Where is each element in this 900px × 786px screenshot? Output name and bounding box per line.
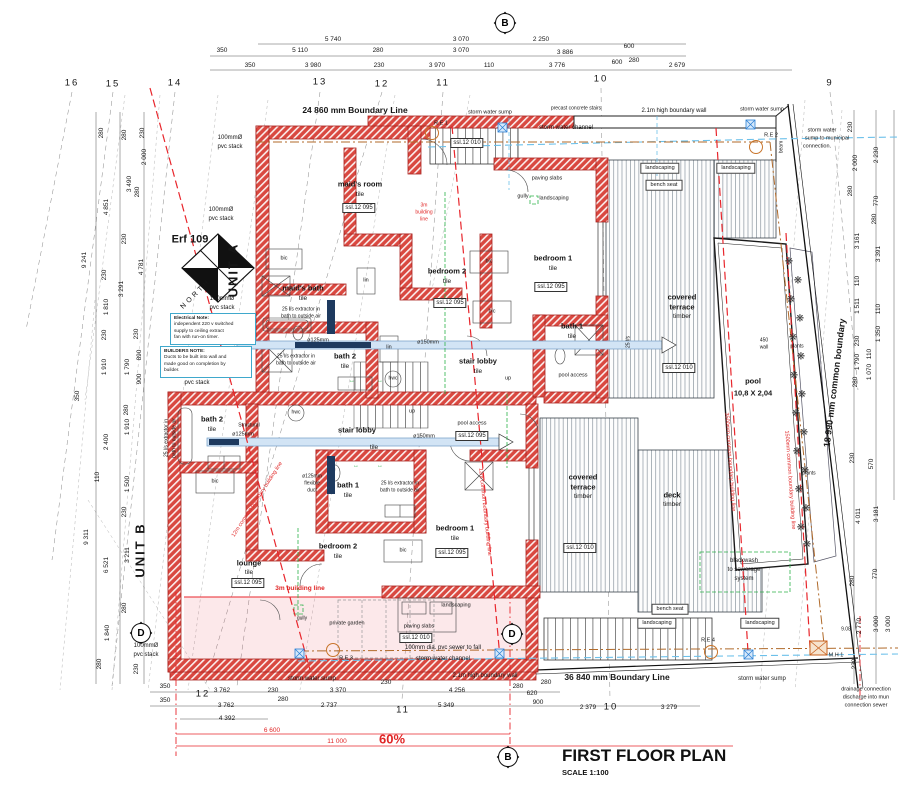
label-5-349: 5 349: [438, 703, 454, 710]
label-2-250: 2 250: [533, 37, 549, 44]
annotation-layer: 5 7403 0702 2503505 1102803 0703 8866003…: [0, 0, 900, 786]
label-25-l-s-extractor-in: 25 l/s extractor in: [277, 355, 315, 360]
label-stair-lobby: stair lobby: [459, 357, 497, 365]
label-gully: gully: [297, 617, 307, 622]
label-25-l-s-extractor-in: 25 l/s extractor in: [165, 419, 170, 457]
label-maid-s-room: maid's room: [338, 180, 382, 188]
label-beam: beam: [780, 141, 785, 154]
label-duct: duct: [307, 489, 316, 494]
label-pool-access: pool access: [457, 421, 486, 427]
label-tile: tile: [443, 279, 451, 286]
label-1-790: 1 790: [855, 354, 862, 370]
note-box-electrical-note: Electrical Note:independent 220 v switch…: [170, 313, 256, 345]
label-up: up: [409, 409, 415, 415]
label-350: 350: [160, 698, 171, 705]
label-tile: tile: [344, 493, 352, 500]
label-2-770: 2 770: [857, 618, 864, 634]
label-timber: timber: [663, 502, 681, 509]
label-18-990-mm-common-boundary: 18 990 mm common boundary: [823, 318, 848, 448]
label-3-762: 3 762: [218, 703, 234, 710]
label-25-l-s-extractor-in: 25 l/s extractor in: [282, 308, 320, 313]
marker-letter: B: [495, 13, 515, 33]
marker-letter: D: [502, 624, 522, 644]
label-3-970: 3 970: [429, 63, 445, 70]
label-pvc-stack: pvc stack: [184, 380, 209, 386]
page-title: FIRST FLOOR PLAN: [562, 746, 726, 766]
label-230: 230: [102, 270, 109, 281]
label-1-910: 1 910: [102, 359, 109, 375]
label-620: 620: [527, 691, 538, 698]
label-lin: lin: [386, 345, 392, 351]
section-marker-b: B: [497, 746, 519, 768]
label-1-790: 1 790: [125, 359, 132, 375]
label-150mm: ø150mm: [413, 434, 435, 440]
label-230: 230: [134, 329, 141, 340]
label-10: 10: [594, 74, 609, 84]
plant-icon: ❋: [798, 390, 806, 401]
label-570: 570: [869, 459, 876, 470]
label-2-000: 2 000: [142, 149, 149, 165]
label-110: 110: [867, 349, 874, 359]
label-bench-seat: bench seat: [646, 180, 683, 191]
label-ssl-12-095: ssl.12 095: [433, 298, 466, 308]
label-125mm: ø125mm: [302, 475, 322, 480]
label-m-h-1: M.H 1: [829, 653, 844, 659]
plant-icon: ❋: [793, 447, 801, 458]
label-24-860-mm-boundary-line: 24 860 mm Boundary Line: [302, 106, 407, 115]
label-4-392: 4 392: [219, 716, 235, 723]
label-bedroom-1: bedroom 1: [436, 524, 474, 532]
label-230: 230: [374, 63, 385, 70]
label-landscaping: landscaping: [740, 618, 779, 629]
label-ssl-12-095: ssl.12 095: [342, 203, 375, 213]
label-lounge: lounge: [237, 559, 262, 567]
label-6-600: 6 600: [264, 728, 280, 735]
section-marker-d: D: [501, 623, 523, 645]
label-landscaping: landscaping: [640, 163, 679, 174]
label-280: 280: [122, 130, 129, 141]
label-bath-to-outside-air: bath to outside air: [380, 489, 420, 494]
label-flexible: flexible: [304, 482, 320, 487]
label-connection-sewer: connection sewer: [845, 703, 888, 709]
label-2-737: 2 737: [321, 703, 337, 710]
label-100mm-dia-pvc-sewer-to-fall: 100mm dia. pvc sewer to fall: [405, 645, 481, 651]
label-1-070: 1 070: [867, 364, 874, 380]
label-280: 280: [99, 128, 106, 139]
label-bath-to-outside-air: bath to outside air: [173, 418, 178, 458]
label-plants: plants: [790, 345, 803, 350]
label-230: 230: [102, 330, 109, 341]
marker-letter: D: [131, 623, 151, 643]
label-r-e-1: R.E 1: [434, 121, 448, 127]
label-north: NORTH: [179, 277, 212, 310]
label-1-350: 1 350: [876, 326, 883, 342]
label-bath-1: bath 1: [337, 481, 359, 489]
label-storm-water-sump: storm water sump: [468, 110, 512, 116]
label-drainage-connection: drainage connection: [841, 687, 891, 693]
label-110: 110: [484, 63, 494, 70]
label-60: 60%: [379, 733, 405, 746]
drawing-title-block: FIRST FLOOR PLAN SCALE 1:100: [562, 746, 726, 777]
label-230: 230: [855, 336, 862, 347]
plant-icon: ❋: [794, 276, 802, 287]
label-bath-1: bath 1: [561, 322, 583, 330]
plant-icon: ❋: [790, 371, 798, 382]
label-3-070: 3 070: [453, 48, 469, 55]
label-11: 11: [436, 78, 450, 88]
plant-icon: ❋: [787, 295, 795, 306]
label-system: system: [734, 576, 753, 582]
label-ssl-12-010: ssl.12 010: [563, 543, 596, 553]
label-280: 280: [853, 377, 860, 388]
label-1-500: 1 500: [125, 476, 132, 492]
plant-icon: ❋: [795, 485, 803, 496]
label-pvc-stack: pvc stack: [208, 216, 233, 222]
plant-icon: ❋: [796, 314, 804, 325]
label-280: 280: [513, 684, 524, 691]
label-600: 600: [612, 60, 623, 67]
label-110: 110: [855, 276, 862, 286]
label-bath-2: bath 2: [334, 352, 356, 360]
label-label: ↔: [377, 378, 383, 384]
label-12: 12: [196, 689, 211, 699]
plant-icon: ❋: [797, 523, 805, 534]
label-25-l-s-extractor-in: 25 l/s extractor in: [381, 482, 419, 487]
label-16: 16: [65, 78, 80, 88]
label-landscaping: landscaping: [441, 603, 470, 609]
label-350: 350: [75, 391, 82, 402]
label-230: 230: [122, 507, 129, 518]
label-ssl-12-095: ssl.12 095: [435, 548, 468, 558]
label-label: ↔: [349, 378, 355, 384]
label-2-400: 2 400: [104, 434, 111, 450]
label-3m: 3m: [421, 204, 428, 209]
plant-icon: ❋: [803, 540, 811, 551]
label-paving-slabs: paving slabs: [532, 176, 563, 182]
label-connection: connection.: [803, 144, 831, 150]
label-280: 280: [97, 659, 104, 670]
label-4-256: 4 256: [449, 688, 465, 695]
label-gully: gully: [517, 194, 528, 200]
label-770: 770: [874, 196, 881, 207]
label-timber: timber: [673, 314, 691, 321]
label-25-l-s: 25 l/s: [627, 336, 632, 348]
label-280: 280: [629, 58, 640, 65]
plant-icon: ❋: [792, 409, 800, 420]
label-landscaping: landscaping: [637, 618, 676, 629]
label-2-230: 2 230: [874, 147, 881, 163]
label-precast-concrete-stairs: precast concrete stairs: [551, 107, 601, 112]
label-bedroom-2: bedroom 2: [428, 267, 466, 275]
label-770: 770: [873, 569, 880, 580]
label-900: 900: [533, 700, 544, 707]
label-pool-access: pool access: [558, 373, 587, 379]
label-3m-building-line: 3m building line: [275, 586, 324, 593]
label-125mm: ø125mm: [232, 432, 254, 438]
label-3-291: 3 291: [119, 281, 126, 297]
label-9-311: 9 311: [84, 529, 91, 545]
label-lin: lin: [363, 278, 369, 284]
label-bench-seat: bench seat: [652, 604, 689, 615]
label-wall: wall: [760, 346, 769, 351]
label-13: 13: [313, 77, 328, 87]
label-9: 9: [826, 78, 833, 88]
label-1-810: 1 810: [104, 299, 111, 315]
plant-icon: ❋: [800, 428, 808, 439]
note-line: fan with run-on timer.: [174, 335, 252, 341]
label-3-886: 3 886: [557, 50, 573, 57]
label-280: 280: [373, 48, 384, 55]
label-9-08: 9.08: [841, 628, 851, 633]
label-private-garden: private garden: [329, 621, 364, 627]
label-tile: tile: [356, 192, 364, 199]
drawing-scale: SCALE 1:100: [562, 768, 726, 777]
label-1500mm-common-boundary-build: 1500mm common boundary building line: [783, 430, 795, 529]
label-36-840-mm-boundary-line: 36 840 mm Boundary Line: [564, 673, 669, 682]
plant-icon: ❋: [797, 352, 805, 363]
label-280: 280: [541, 680, 552, 687]
label-11-000: 11 000: [327, 739, 346, 746]
section-marker-d: D: [130, 622, 152, 644]
label-blackwash: blackwash: [730, 558, 758, 564]
label-r-e-3: R.E 3: [339, 656, 353, 662]
label-3-181: 3 181: [874, 506, 881, 522]
label-up: up: [505, 376, 511, 382]
label-280: 280: [135, 187, 142, 198]
label-storm-water-sump: storm water sump: [738, 676, 786, 682]
label-15: 15: [106, 79, 121, 89]
label-tile: tile: [334, 554, 342, 561]
label-ssl-12-010: ssl.12 010: [662, 363, 695, 373]
label-hwc: hwc: [389, 377, 398, 382]
label-230: 230: [122, 234, 129, 245]
plant-icon: ❋: [801, 466, 809, 477]
label-bath-to-outside-air: bath to outside air: [281, 315, 321, 320]
label-280: 280: [848, 186, 855, 197]
label-280: 280: [124, 405, 131, 416]
label-280: 280: [122, 603, 129, 614]
label-landscaping: landscaping: [539, 196, 568, 202]
label-12m-common-boundary-building: 12m common boundary building line: [232, 461, 285, 538]
label-unit-b: UNIT B: [134, 522, 147, 577]
label-tile: tile: [370, 445, 378, 452]
note-line: builder.: [164, 368, 248, 374]
label-ssl-12-095: ssl.12 095: [231, 578, 264, 588]
label-tile: tile: [245, 570, 253, 577]
label-2-1m-high-boundary-wall: 2.1m high boundary wall: [641, 108, 706, 114]
label-230: 230: [852, 659, 859, 670]
label-4-851: 4 851: [104, 199, 111, 215]
label-4-011: 4 011: [856, 508, 863, 524]
label-bath-2: bath 2: [201, 415, 223, 423]
label-bic: bic: [211, 479, 218, 485]
label-ssl-12-095: ssl.12 095: [455, 431, 488, 441]
label-tile: tile: [299, 296, 307, 303]
label-230: 230: [268, 688, 279, 695]
label-label: ↔: [377, 463, 383, 469]
label-3-000: 3 000: [886, 616, 893, 632]
label-tile: tile: [451, 536, 459, 543]
label-bic: bic: [485, 259, 492, 265]
label-unit-a: UNIT A: [227, 243, 240, 298]
label-2-379: 2 379: [580, 705, 596, 712]
label-900: 900: [137, 374, 144, 385]
label-structural: Structural: [238, 424, 259, 429]
label-erf-109: Erf 109: [172, 235, 209, 246]
label-terrace: terrace: [570, 483, 595, 491]
label-10: 10: [604, 702, 619, 712]
label-r-e-4: R.E 4: [701, 638, 715, 644]
label-ssl-12-010: ssl.12 010: [450, 138, 483, 148]
label-bic: bic: [399, 548, 406, 554]
label-125mm: ø125mm: [307, 338, 329, 344]
label-discharge-into-mun: discharge into mun: [843, 695, 889, 701]
label-terrace: terrace: [669, 303, 694, 311]
label-11: 11: [396, 705, 410, 715]
label-3-000: 3 000: [874, 616, 881, 632]
label-tile: tile: [474, 369, 482, 376]
label-bic: bic: [280, 256, 287, 262]
label-1-910: 1 910: [125, 419, 132, 435]
label-2-1m-high-boundary-wall: 2.1m high boundary wall: [452, 673, 517, 679]
label-r-e-2: R.E 2: [764, 133, 778, 139]
label-deck: deck: [663, 491, 680, 499]
label-3-070: 3 070: [453, 37, 469, 44]
label-150mm: ø150mm: [417, 340, 439, 346]
label-building: building: [415, 211, 432, 216]
label-230: 230: [381, 680, 392, 687]
label-sump-to-municipal: sump to municipal: [805, 136, 849, 142]
label-ssl-12-095: ssl.12 095: [534, 282, 567, 292]
label-110: 110: [95, 472, 102, 482]
label-280: 280: [872, 214, 879, 225]
label-230: 230: [134, 664, 141, 675]
label-14: 14: [168, 78, 183, 88]
plant-icon: ❋: [789, 333, 797, 344]
label-1-840: 1 840: [105, 625, 112, 641]
note-box-builders-note: BUILDERS NOTE:Ducts to be built into wal…: [160, 346, 252, 378]
label-3-370: 3 370: [330, 688, 346, 695]
marker-letter: B: [498, 747, 518, 767]
label-line: line: [420, 218, 428, 223]
label-350: 350: [217, 48, 228, 55]
label-bic: bic: [488, 309, 495, 315]
label-3500mm-common-boundary-build: 3500mm common boundary building line: [723, 412, 735, 511]
label-label: ↔: [353, 463, 359, 469]
label-pvc-stack: pvc stack: [209, 305, 234, 311]
label-280: 280: [278, 697, 289, 704]
label-3-211: 3 211: [125, 547, 132, 563]
label-maid-s-bath: maid's bath: [282, 284, 323, 292]
label-to-sewerage: to sewerage: [728, 567, 761, 573]
label-tile: tile: [208, 427, 216, 434]
label-3-161: 3 161: [855, 233, 862, 249]
label-bath-to-outside-air: bath to outside air: [276, 362, 316, 367]
label-100mm: 100mmØ: [209, 207, 234, 213]
plant-icon: ❋: [785, 257, 793, 268]
label-covered: covered: [569, 473, 598, 481]
label-12m-common-boundary-building: 12m common boundary building line: [477, 468, 492, 556]
label-3-279: 3 279: [661, 705, 677, 712]
label-890: 890: [137, 350, 144, 361]
label-280: 280: [850, 576, 857, 587]
label-covered: covered: [668, 293, 697, 301]
label-2-000: 2 000: [853, 155, 860, 171]
label-450: 450: [760, 339, 768, 344]
label-pool: pool: [745, 377, 761, 385]
label-10-8-x-2-04: 10,8 X 2,04: [734, 389, 772, 397]
label-tile: tile: [341, 364, 349, 371]
label-storm-water-channel: storm water channel: [416, 656, 470, 662]
label-storm-water-sump: storm water sump: [740, 107, 784, 113]
label-3-490: 3 490: [127, 176, 134, 192]
label-3-762: 3 762: [214, 688, 230, 695]
label-5-110: 5 110: [292, 48, 308, 55]
floor-plan-sheet: 5 7403 0702 2503505 1102803 0703 8866003…: [0, 0, 900, 786]
label-9-241: 9 241: [82, 252, 89, 268]
label-timber: timber: [574, 494, 592, 501]
label-stair-lobby: stair lobby: [338, 426, 376, 434]
label-2-679: 2 679: [669, 63, 685, 70]
label-3-980: 3 980: [305, 63, 321, 70]
label-hwc: hwc: [292, 411, 301, 416]
label-230: 230: [848, 122, 855, 133]
label-pvc-stack: pvc stack: [217, 144, 242, 150]
label-3-776: 3 776: [549, 63, 565, 70]
label-bedroom-2: bedroom 2: [319, 542, 357, 550]
section-marker-b: B: [494, 12, 516, 34]
label-storm-water-channel: storm water channel: [539, 125, 593, 131]
label-storm-water: storm water: [808, 128, 837, 134]
label-1-511: 1 511: [855, 298, 862, 314]
label-bedroom-1: bedroom 1: [534, 254, 572, 262]
label-350: 350: [160, 684, 171, 691]
label-3-391: 3 391: [876, 246, 883, 262]
label-tile: tile: [549, 266, 557, 273]
label-110: 110: [876, 304, 883, 314]
label-230: 230: [850, 453, 857, 464]
label-12: 12: [375, 79, 390, 89]
label-paving-slabs: paving slabs: [404, 624, 435, 630]
label-ssl-12-010: ssl.12 010: [399, 633, 432, 643]
label-4-781: 4 781: [139, 259, 146, 275]
label-6-521: 6 521: [104, 557, 111, 573]
label-tile: tile: [568, 334, 576, 341]
label-storm-water-sump: storm water sump: [288, 676, 336, 682]
label-100mm: 100mmØ: [218, 135, 243, 141]
label-230: 230: [140, 128, 147, 139]
plant-icon: ❋: [802, 504, 810, 515]
label-5-740: 5 740: [325, 37, 341, 44]
label-pvc-stack: pvc stack: [133, 652, 158, 658]
label-600: 600: [624, 44, 635, 51]
label-landscaping: landscaping: [716, 163, 755, 174]
label-350: 350: [245, 63, 256, 70]
